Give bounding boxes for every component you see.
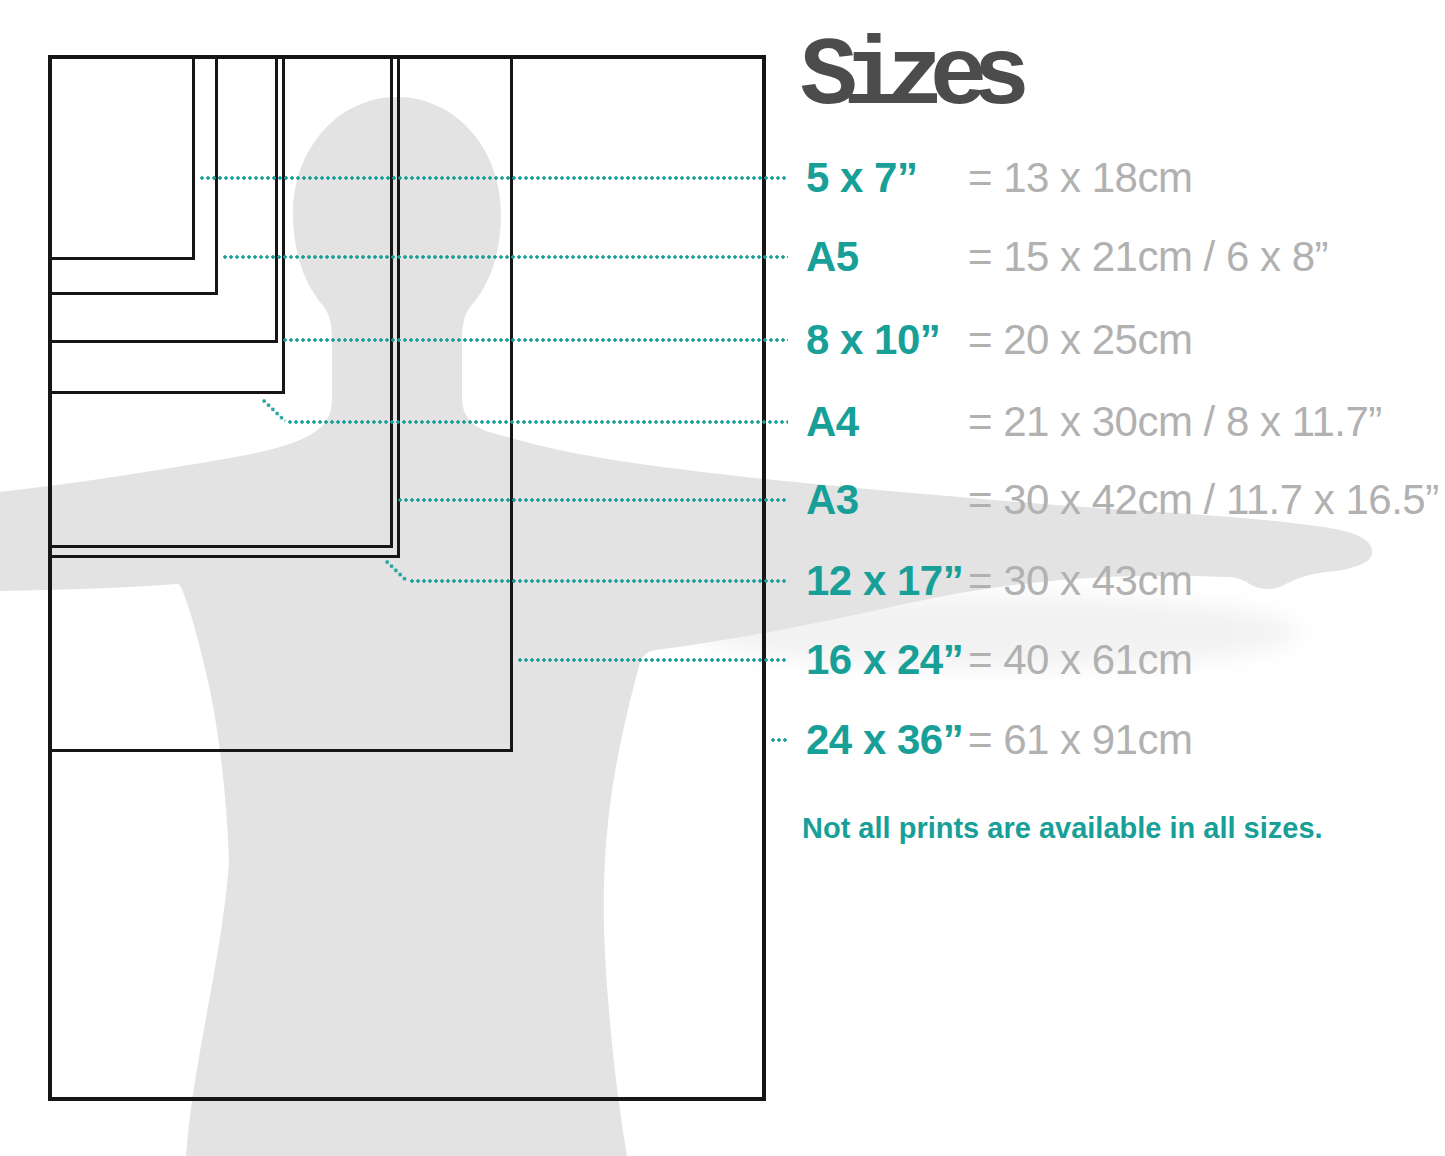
- size-label-5x7: 5 x 7”: [806, 152, 917, 204]
- size-frame-5x7: [48, 55, 195, 260]
- size-value-a3: = 30 x 42cm / 11.7 x 16.5”: [968, 474, 1439, 526]
- size-label-a3: A3: [806, 474, 859, 526]
- leader-line-a3: [397, 498, 788, 502]
- leader-line-12x17: [409, 579, 788, 583]
- size-label-a5: A5: [806, 231, 859, 283]
- size-label-12x17: 12 x 17”: [806, 555, 963, 607]
- size-value-a4: = 21 x 30cm / 8 x 11.7”: [968, 396, 1382, 448]
- size-label-a4: A4: [806, 396, 859, 448]
- size-value-16x24: = 40 x 61cm: [968, 634, 1192, 686]
- size-value-24x36: = 61 x 91cm: [968, 714, 1192, 766]
- availability-note: Not all prints are available in all size…: [802, 810, 1323, 846]
- size-label-8x10: 8 x 10”: [806, 314, 940, 366]
- leader-line-16x24: [517, 658, 788, 662]
- size-label-16x24: 16 x 24”: [806, 634, 963, 686]
- size-label-24x36: 24 x 36”: [806, 714, 963, 766]
- size-guide-diagram: 5 x 7”= 13 x 18cmA5= 15 x 21cm / 6 x 8”8…: [0, 0, 1445, 1156]
- leader-line-a5: [222, 255, 788, 259]
- size-value-a5: = 15 x 21cm / 6 x 8”: [968, 231, 1328, 283]
- page-title: Sizes: [800, 30, 1016, 126]
- leader-line-5x7: [199, 176, 788, 180]
- leader-line-8x10: [282, 338, 788, 342]
- size-value-5x7: = 13 x 18cm: [968, 152, 1192, 204]
- leader-line-24x36: [770, 738, 788, 742]
- leader-line-a4: [287, 420, 788, 424]
- size-value-12x17: = 30 x 43cm: [968, 555, 1192, 607]
- size-value-8x10: = 20 x 25cm: [968, 314, 1192, 366]
